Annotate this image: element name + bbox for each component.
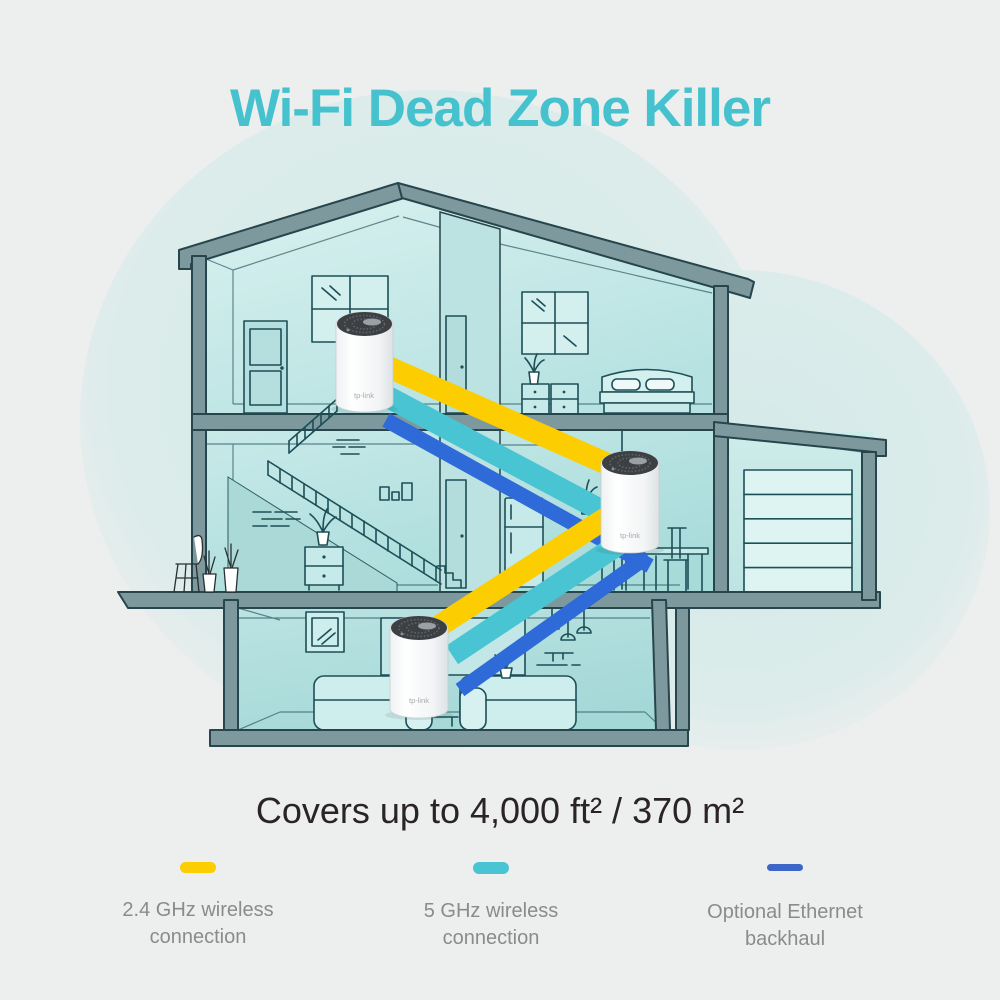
deco-led [347, 329, 350, 332]
legend-item-5ghz: 5 GHz wireless connection [376, 862, 606, 952]
legend-swatch-ethernet [767, 864, 803, 871]
deco-logo: tp-link [409, 696, 429, 705]
wall-frame [306, 612, 344, 652]
deco-unit-top: tp-link [332, 312, 398, 414]
wall-right [714, 286, 728, 600]
deco-logo: tp-link [354, 391, 374, 400]
legend-label-ethernet: Optional Ethernet backhaul [670, 899, 900, 953]
garage-wall-right [862, 452, 876, 600]
poster-canvas: tp-link tp-link tp-link [0, 0, 1000, 1000]
deco-top-slot [629, 458, 647, 465]
bed [600, 370, 694, 414]
deco-led [612, 468, 615, 471]
legend-label-5ghz: 5 GHz wireless connection [376, 898, 606, 952]
legend-label-24ghz: 2.4 GHz wireless connection [83, 897, 313, 951]
page-title: Wi-Fi Dead Zone Killer [0, 78, 1000, 139]
deco-top-slot [418, 623, 436, 630]
deco-unit-bottom: tp-link [385, 616, 453, 720]
deco-logo: tp-link [620, 531, 640, 540]
legend-swatch-24ghz [180, 862, 216, 873]
support-column [676, 608, 689, 730]
house-illustration: tp-link tp-link tp-link [0, 0, 1000, 1000]
legend-swatch-5ghz [473, 862, 509, 874]
legend-item-24ghz: 2.4 GHz wireless connection [83, 862, 313, 951]
legend-item-ethernet: Optional Ethernet backhaul [670, 864, 900, 953]
nightstand [305, 547, 343, 590]
wall-ground-right [652, 600, 670, 730]
deco-unit-middle: tp-link [596, 451, 664, 555]
slab-bottom [210, 730, 688, 746]
bedroom-window [522, 292, 588, 354]
attic-door [244, 321, 287, 413]
deco-top-slot [363, 319, 381, 326]
deco-led [401, 633, 404, 636]
divider-door-middle [446, 480, 466, 588]
wall-ground-left [224, 600, 238, 732]
coverage-text: Covers up to 4,000 ft² / 370 m² [0, 790, 1000, 832]
garage-door [744, 470, 852, 592]
